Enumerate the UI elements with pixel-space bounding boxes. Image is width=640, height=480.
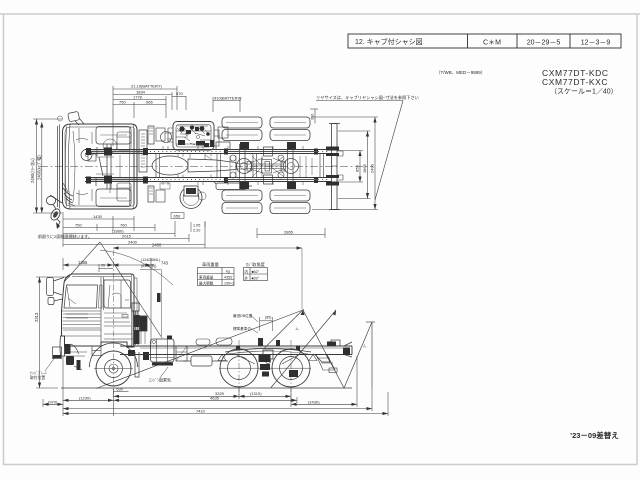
svg-text:650: 650	[174, 214, 181, 219]
svg-text:21.19(BATTERY): 21.19(BATTERY)	[131, 84, 162, 89]
svg-text:（T/WB．MED－9889）: （T/WB．MED－9889）	[436, 70, 485, 75]
svg-text:2.20: 2.20	[193, 229, 200, 233]
svg-text:(1230): (1230)	[79, 395, 91, 400]
svg-text:910(BATTERY): 910(BATTERY)	[214, 96, 242, 101]
svg-text:1865: 1865	[362, 163, 367, 173]
svg-text:2015: 2015	[122, 234, 132, 239]
svg-text:7410: 7410	[196, 409, 206, 414]
svg-text:C＊M: C＊M	[483, 40, 501, 47]
svg-text:850: 850	[355, 165, 360, 172]
svg-text:■33°: ■33°	[252, 276, 260, 280]
svg-text:2400: 2400	[152, 243, 162, 248]
svg-text:2490(ﾐﾗｰ含ﾑ): 2490(ﾐﾗｰ含ﾑ)	[29, 158, 36, 183]
svg-text:’23－09差替え: ’23－09差替え	[570, 430, 619, 440]
svg-text:(85): (85)	[265, 316, 271, 320]
svg-text:(1310): (1310)	[250, 391, 262, 396]
svg-text:750: 750	[75, 223, 82, 228]
svg-text:1.05: 1.05	[193, 224, 200, 228]
svg-text:（スケール＝1／40）: （スケール＝1／40）	[550, 88, 618, 96]
svg-text:標準基準位: 標準基準位	[233, 326, 251, 331]
svg-text:20－29－5: 20－29－5	[527, 40, 561, 47]
svg-text:760: 760	[120, 223, 127, 228]
svg-text:12－3－9: 12－3－9	[581, 40, 611, 47]
svg-text:743: 743	[161, 261, 169, 266]
svg-text:630: 630	[117, 388, 123, 392]
svg-text:kg: kg	[226, 270, 230, 274]
svg-text:195×3: 195×3	[224, 282, 234, 286]
svg-text:ｙ: ｙ	[294, 326, 299, 331]
svg-text:最大積載: 最大積載	[199, 281, 214, 286]
svg-text:670: 670	[176, 91, 183, 96]
svg-text:1778: 1778	[133, 95, 143, 100]
svg-text:ｶｼﾞ取角度: ｶｼﾞ取角度	[246, 261, 266, 268]
svg-text:7°: 7°	[363, 343, 368, 348]
svg-text:(124/2084L): (124/2084L)	[141, 258, 160, 262]
svg-text:4635: 4635	[210, 395, 220, 400]
svg-text:外: 外	[245, 275, 249, 280]
svg-text:CXM77DT-KXC: CXM77DT-KXC	[542, 77, 608, 87]
svg-text:最低DB位置: 最低DB位置	[233, 313, 253, 318]
svg-text:2400: 2400	[128, 240, 138, 245]
svg-text:1430: 1430	[93, 214, 103, 219]
svg-text:(970): (970)	[48, 399, 58, 404]
svg-text:966: 966	[146, 100, 153, 105]
svg-text:2490: 2490	[370, 163, 375, 173]
svg-text:車両重量: 車両重量	[202, 261, 219, 268]
svg-text:750: 750	[119, 100, 126, 105]
svg-text:ﾅﾝﾊﾞﾌﾟﾚｰﾄ: ﾅﾝﾊﾞﾌﾟﾚｰﾄ	[30, 371, 47, 376]
svg-text:内: 内	[245, 269, 249, 274]
svg-text:前廻りに2面間隔規制います。: 前廻りに2面間隔規制います。	[38, 233, 92, 239]
svg-text:12. キャブ付シャシ図: 12. キャブ付シャシ図	[355, 37, 423, 46]
svg-text:■52°: ■52°	[252, 270, 260, 274]
svg-text:車両重量: 車両重量	[199, 275, 214, 280]
svg-text:リヤサイズは、キャブリヤシャシ図−寸法を参照下さい: リヤサイズは、キャブリヤシャシ図−寸法を参照下さい	[316, 94, 419, 101]
svg-text:2313: 2313	[34, 312, 39, 322]
svg-text:350: 350	[311, 114, 315, 120]
svg-text:ｴﾝｼﾞﾝ廻累気: ｴﾝｼﾞﾝ廻累気	[149, 377, 171, 383]
svg-text:2400(ｷｬﾌﾞ幅): 2400(ｷｬﾌﾞ幅)	[36, 155, 43, 180]
svg-text:2865: 2865	[284, 230, 294, 235]
svg-text:4353: 4353	[224, 276, 232, 280]
svg-text:95: 95	[101, 264, 105, 268]
svg-text:取付位置: 取付位置	[30, 375, 45, 380]
svg-text:(1430): (1430)	[308, 399, 320, 404]
